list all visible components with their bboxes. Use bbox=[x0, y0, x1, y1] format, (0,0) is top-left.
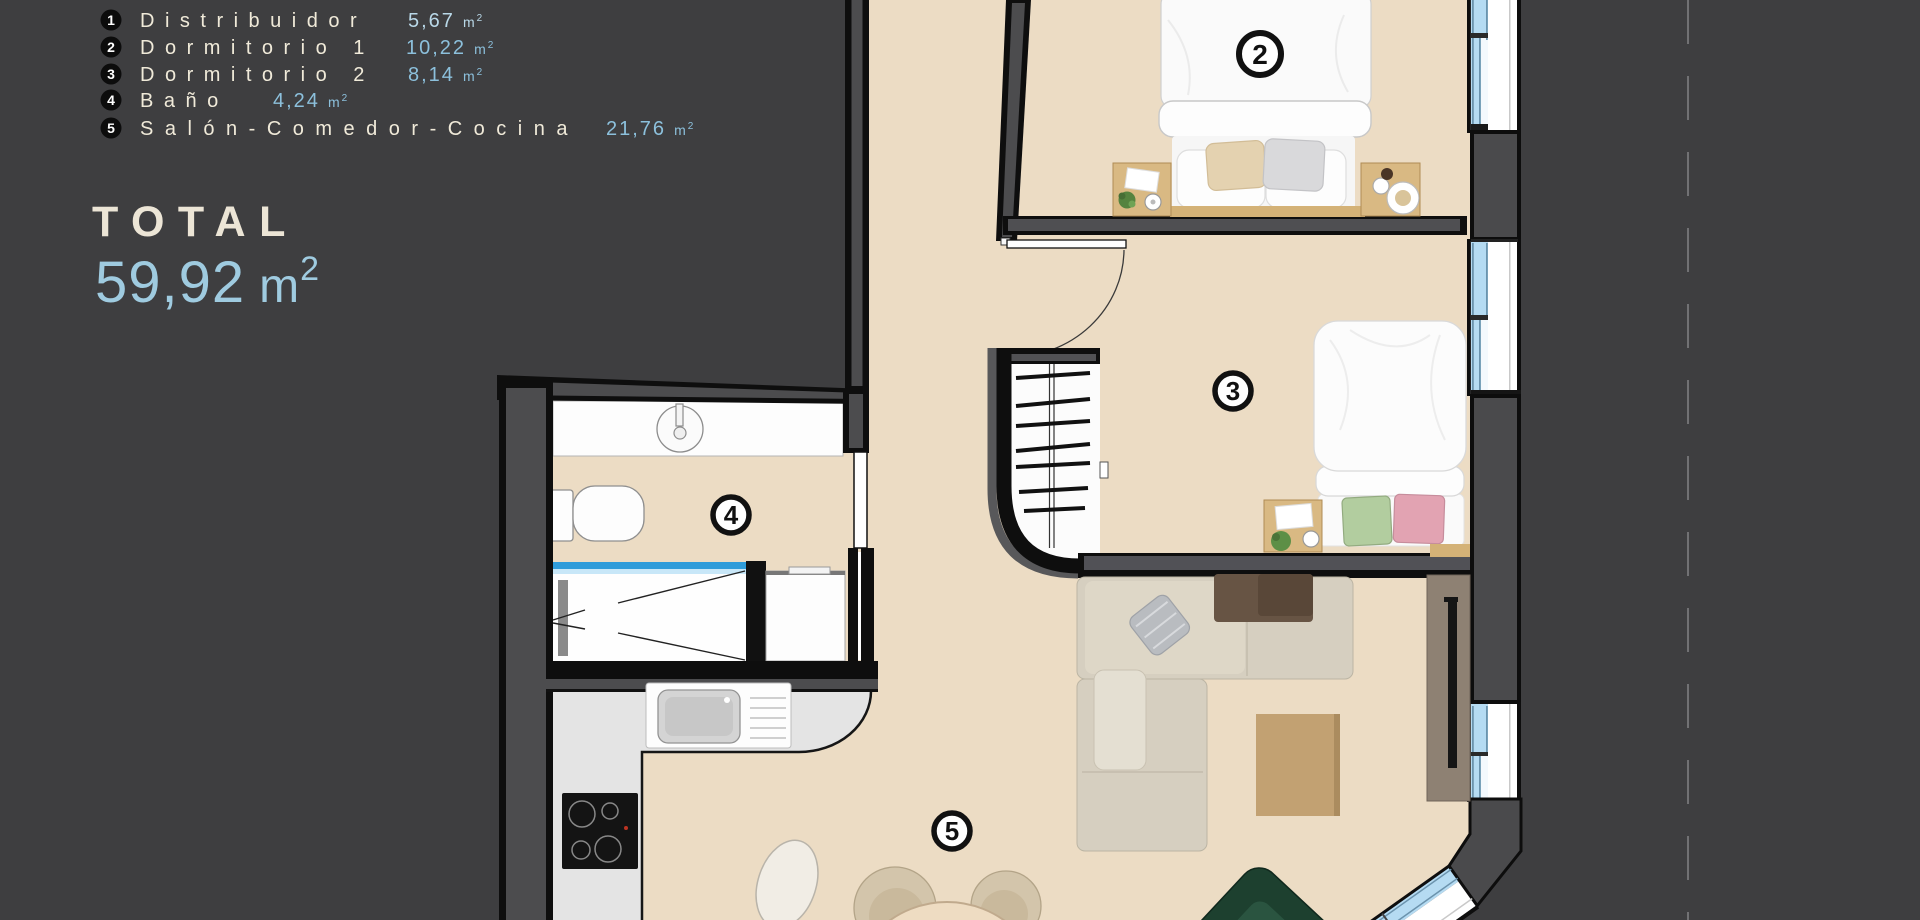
svg-text:59,92m2: 59,92m2 bbox=[95, 250, 320, 315]
svg-text:5: 5 bbox=[945, 816, 959, 846]
svg-text:Dormitorio 1: Dormitorio 1 bbox=[140, 37, 375, 59]
svg-text:5: 5 bbox=[107, 120, 115, 136]
svg-text:8,14m2: 8,14m2 bbox=[408, 64, 484, 86]
svg-text:2: 2 bbox=[1252, 39, 1268, 70]
svg-text:TOTAL: TOTAL bbox=[92, 198, 299, 246]
svg-text:Baño: Baño bbox=[140, 90, 229, 112]
svg-text:Dormitorio 2: Dormitorio 2 bbox=[140, 64, 375, 86]
svg-text:2: 2 bbox=[107, 39, 115, 55]
svg-text:Salón-Comedor-Cocina: Salón-Comedor-Cocina bbox=[140, 118, 579, 140]
svg-text:4,24m2: 4,24m2 bbox=[273, 90, 349, 112]
svg-text:3: 3 bbox=[107, 66, 115, 82]
svg-text:10,22m2: 10,22m2 bbox=[406, 37, 495, 59]
svg-text:4: 4 bbox=[724, 500, 739, 530]
svg-text:3: 3 bbox=[1226, 376, 1240, 406]
svg-text:5,67m2: 5,67m2 bbox=[408, 10, 484, 32]
svg-text:21,76m2: 21,76m2 bbox=[606, 118, 695, 140]
svg-text:1: 1 bbox=[107, 12, 115, 28]
svg-text:4: 4 bbox=[107, 92, 115, 108]
svg-text:Distribuidor: Distribuidor bbox=[140, 10, 367, 32]
